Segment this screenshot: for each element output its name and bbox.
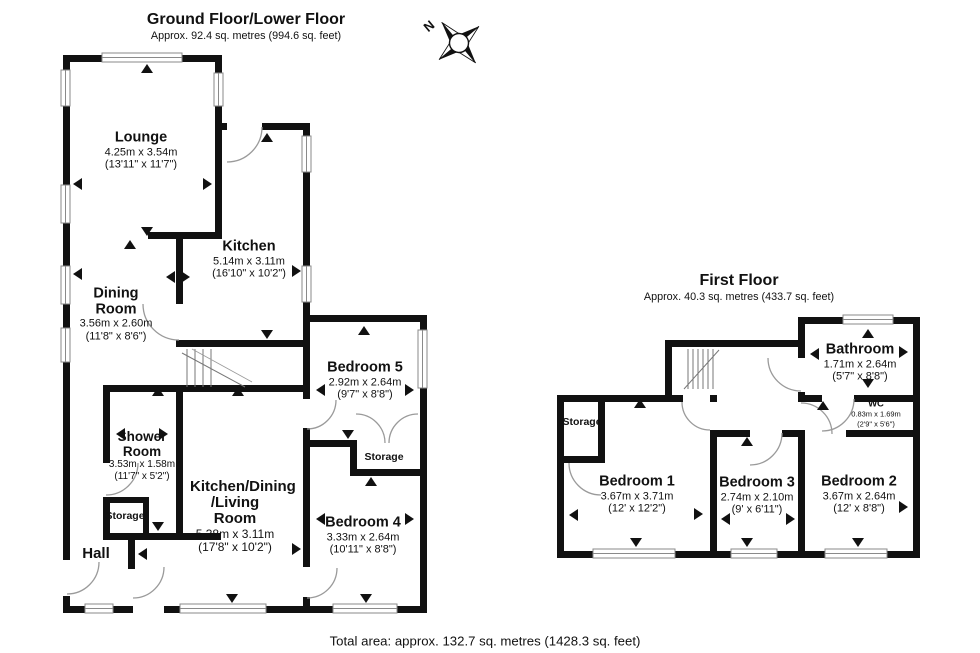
direction-marker <box>810 348 819 360</box>
first-floor-header: First Floor Approx. 40.3 sq. metres (433… <box>644 272 834 304</box>
wall-segment <box>303 322 310 399</box>
door-swing-arc <box>133 567 164 598</box>
room-dims-metric: 3.56m x 2.60m <box>80 318 153 331</box>
direction-marker <box>630 538 642 547</box>
room-label-bedroom-5: Bedroom 5 2.92m x 2.64m (9'7" x 8'8") <box>327 360 403 401</box>
ground-floor-title: Ground Floor/Lower Floor <box>147 11 345 29</box>
room-label-shower-room: Shower Room 3.53m x 1.58m (11'7" x 5'2") <box>109 430 175 482</box>
room-label-lounge: Lounge 4.25m x 3.54m (13'11" x 11'7") <box>105 130 178 171</box>
room-name: Bedroom 3 <box>719 475 795 491</box>
wall-segment <box>564 456 605 463</box>
first-floor-subtitle: Approx. 40.3 sq. metres (433.7 sq. feet) <box>644 290 834 304</box>
wall-segment <box>798 392 805 402</box>
room-label-wc: WC 0.83m x 1.69m (2'9" x 5'6") <box>851 400 901 429</box>
direction-marker <box>73 178 82 190</box>
wall-segment <box>262 123 310 130</box>
wall-segment <box>103 385 310 392</box>
room-dims-imperial: (17'8" x 10'2") <box>190 541 280 555</box>
doors-layer <box>67 127 854 598</box>
wall-segment <box>350 469 427 476</box>
wall-segment <box>103 497 149 503</box>
room-dims-metric: 2.74m x 2.10m <box>719 491 795 504</box>
room-label-storage-first-floor: Storage <box>562 416 601 428</box>
wall-segment <box>557 395 672 402</box>
room-label-dining-room: Dining Room 3.56m x 2.60m (11'8" x 8'6") <box>80 287 153 344</box>
direction-marker <box>316 513 325 525</box>
direction-marker <box>124 240 136 249</box>
room-name: Bathroom <box>824 342 897 358</box>
room-dims-imperial: (10'11" x 8'8") <box>325 544 401 557</box>
room-dims-imperial: (5'7" x 8'8") <box>824 371 897 384</box>
wall-segment <box>913 317 920 558</box>
wall-segment <box>710 430 750 437</box>
room-label-bedroom-2: Bedroom 2 3.67m x 2.64m (12' x 8'8") <box>821 474 897 515</box>
wall-segment <box>303 428 310 567</box>
room-name: Bedroom 2 <box>821 474 897 490</box>
room-dims-metric: 3.53m x 1.58m <box>109 459 175 471</box>
wall-segment <box>665 340 805 347</box>
door-swing-arc <box>356 414 385 443</box>
room-dims-metric: 4.25m x 3.54m <box>105 146 178 159</box>
direction-marker <box>358 326 370 335</box>
room-dims-metric: 1.71m x 2.64m <box>824 358 897 371</box>
room-dims-imperial: (13'11" x 11'7") <box>105 159 178 172</box>
direction-marker <box>899 501 908 513</box>
floor-plan-page: Ground Floor/Lower Floor Approx. 92.4 sq… <box>0 0 980 653</box>
direction-marker <box>226 594 238 603</box>
direction-marker <box>316 384 325 396</box>
room-dims-imperial: (9'7" x 8'8") <box>327 389 403 402</box>
wall-segment <box>176 385 183 537</box>
direction-marker <box>141 64 153 73</box>
wall-segment <box>805 395 822 402</box>
room-label-kitchen-dining-living: Kitchen/Dining /Living Room 5.38m x 3.11… <box>190 479 280 555</box>
wall-segment <box>598 395 605 462</box>
direction-marker <box>569 509 578 521</box>
wall-segment <box>215 123 227 130</box>
direction-marker <box>694 508 703 520</box>
room-label-bedroom-4: Bedroom 4 3.33m x 2.64m (10'11" x 8'8") <box>325 515 401 556</box>
stair-break-line <box>684 350 719 389</box>
door-swing-arc <box>67 562 99 594</box>
room-name: Dining Room <box>85 287 147 318</box>
room-dims-metric: 5.14m x 3.11m <box>212 255 286 268</box>
wall-segment <box>672 395 683 402</box>
room-dims-metric: 3.67m x 2.64m <box>821 490 897 503</box>
room-name: Kitchen/Dining /Living Room <box>190 479 280 528</box>
room-dims-metric: 2.92m x 2.64m <box>327 376 403 389</box>
room-dims-metric: 3.33m x 2.64m <box>325 531 401 544</box>
wall-segment <box>303 315 427 322</box>
room-label-bedroom-1: Bedroom 1 3.67m x 3.71m (12' x 12'2") <box>599 474 675 515</box>
wall-segment <box>782 430 805 437</box>
ground-floor-header: Ground Floor/Lower Floor Approx. 92.4 sq… <box>147 11 345 43</box>
direction-marker <box>741 437 753 446</box>
direction-marker <box>862 329 874 338</box>
room-label-hall: Hall <box>82 546 110 562</box>
stairs-layer <box>182 349 719 389</box>
room-name: Kitchen <box>212 239 286 255</box>
room-dims-imperial: (12' x 8'8") <box>821 503 897 516</box>
wall-segment <box>710 430 717 558</box>
ground-floor-subtitle: Approx. 92.4 sq. metres (994.6 sq. feet) <box>147 29 345 43</box>
door-swing-arc <box>768 358 801 391</box>
room-name: Bedroom 1 <box>599 474 675 490</box>
room-dims-imperial: (2'9" x 5'6") <box>851 419 901 428</box>
first-floor-title: First Floor <box>644 272 834 290</box>
room-dims-metric: 0.83m x 1.69m <box>851 410 901 419</box>
room-name: Lounge <box>105 130 178 146</box>
direction-marker <box>741 538 753 547</box>
direction-marker <box>899 346 908 358</box>
room-dims-imperial: (9' x 6'11") <box>719 504 795 517</box>
direction-marker <box>365 477 377 486</box>
direction-marker <box>342 430 354 439</box>
room-name: Bedroom 5 <box>327 360 403 376</box>
stair-break-line <box>182 353 245 387</box>
wall-segment <box>148 232 222 239</box>
wall-segment <box>176 232 183 304</box>
wall-segment <box>665 340 672 402</box>
wall-segment <box>215 130 222 239</box>
direction-marker <box>166 271 175 283</box>
door-swing-arc <box>822 399 854 431</box>
room-dims-imperial: (16'10" x 10'2") <box>212 268 286 281</box>
direction-marker <box>405 513 414 525</box>
door-swing-arc <box>307 568 337 598</box>
room-name: WC <box>851 400 901 410</box>
room-dims-imperial: (12' x 12'2") <box>599 503 675 516</box>
direction-marker <box>292 265 301 277</box>
wall-segment <box>128 539 135 569</box>
door-swing-arc <box>389 414 418 443</box>
windows-layer <box>61 53 893 613</box>
room-name: Shower Room <box>111 430 173 459</box>
direction-marker <box>360 594 372 603</box>
direction-marker <box>405 384 414 396</box>
wall-segment <box>846 430 920 437</box>
room-label-storage-inner: Storage <box>105 510 144 522</box>
room-dims-metric: 5.38m x 3.11m <box>190 527 280 541</box>
room-label-bathroom: Bathroom 1.71m x 2.64m (5'7" x 8'8") <box>824 342 897 383</box>
direction-marker <box>817 401 829 410</box>
direction-marker <box>261 330 273 339</box>
door-swing-arc <box>750 433 782 465</box>
wall-segment <box>63 55 70 560</box>
wall-segment <box>798 434 805 551</box>
total-area-footer: Total area: approx. 132.7 sq. metres (14… <box>330 634 641 649</box>
direction-marker <box>292 543 301 555</box>
direction-marker <box>852 538 864 547</box>
wall-segment <box>303 440 356 447</box>
wall-segment <box>710 395 717 402</box>
door-swing-arc <box>569 463 601 495</box>
direction-marker <box>261 133 273 142</box>
room-dims-metric: 3.67m x 3.71m <box>599 490 675 503</box>
room-dims-imperial: (11'8" x 8'6") <box>80 331 153 344</box>
direction-marker <box>181 271 190 283</box>
room-label-bedroom-3: Bedroom 3 2.74m x 2.10m (9' x 6'11") <box>719 475 795 516</box>
room-dims-imperial: (11'7" x 5'2") <box>109 471 175 483</box>
room-name: Bedroom 4 <box>325 515 401 531</box>
door-swing-arc <box>227 127 262 162</box>
direction-marker <box>138 548 147 560</box>
direction-marker <box>152 522 164 531</box>
direction-marker <box>73 268 82 280</box>
door-swing-arc <box>307 400 336 429</box>
wall-segment <box>176 340 310 347</box>
stair-break-line <box>192 349 252 382</box>
direction-marker <box>203 178 212 190</box>
compass-icon <box>422 6 496 80</box>
room-name: Hall <box>82 546 110 562</box>
door-swing-arc <box>682 402 710 430</box>
room-label-kitchen: Kitchen 5.14m x 3.11m (16'10" x 10'2") <box>212 239 286 280</box>
room-label-storage-wing: Storage <box>364 451 403 463</box>
